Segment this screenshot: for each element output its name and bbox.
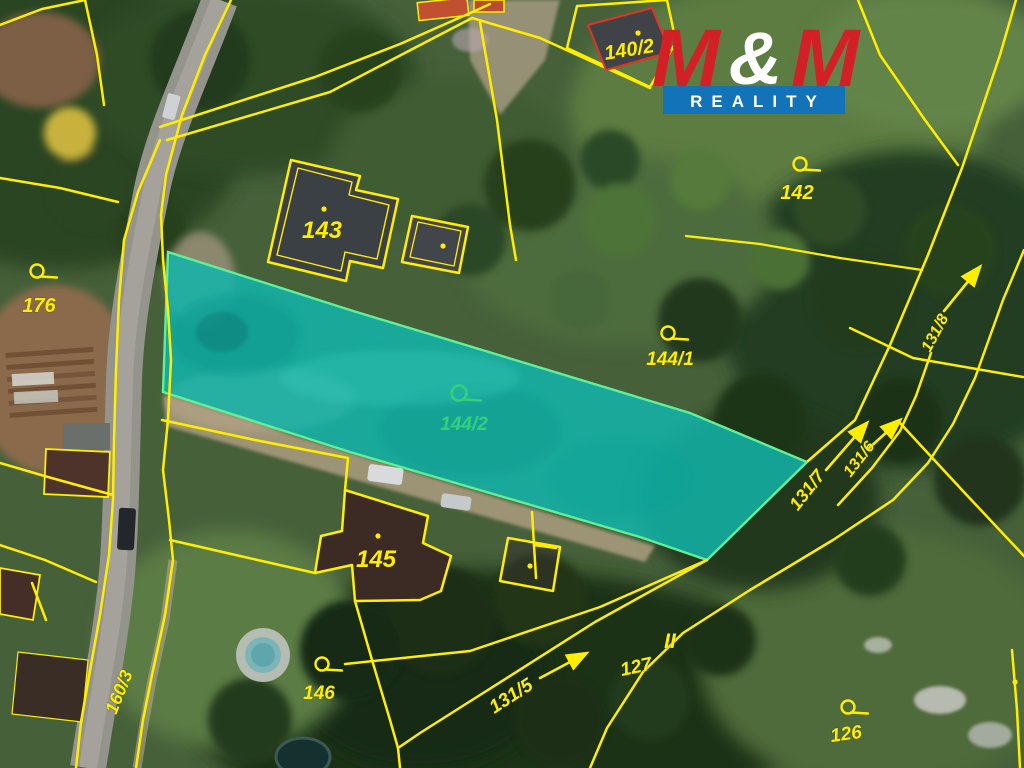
parcel-label-176: 176 (22, 295, 56, 317)
car-on-road (117, 508, 136, 551)
logo-subtitle: REALITY (690, 92, 826, 111)
parcel-label-143: 143 (302, 217, 343, 244)
parcel-label-146: 146 (303, 683, 335, 704)
parcel-label-126: 126 (829, 722, 864, 747)
parcel-label-144-2: 144/2 (440, 414, 488, 435)
cadastral-map: 140/2 142 143 176 144/1 144/2 145 146 13… (0, 0, 1024, 768)
parcel-label-145: 145 (356, 546, 397, 573)
forest-class-mark-II: II (664, 630, 677, 653)
mm-reality-logo: M & M REALITY (652, 11, 861, 114)
parcel-label-144-1: 144/1 (646, 349, 694, 370)
parcel-label-142: 142 (780, 182, 813, 204)
